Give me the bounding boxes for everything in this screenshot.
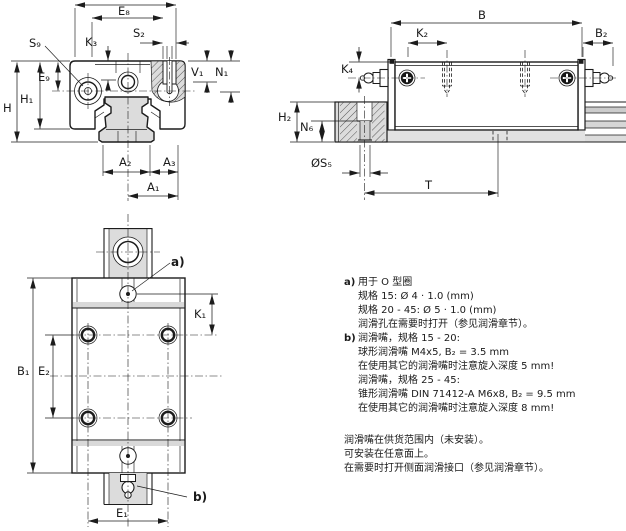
note-item-a: a) 用于 O 型圈 规格 15: Ø 4 · 1.0 (mm) 规格 20 -… (344, 276, 626, 332)
note-line: 规格 20 - 45: Ø 5 · 1.0 (mm) (358, 304, 533, 318)
dim-label-s5: ØS₅ (311, 156, 332, 170)
note-line: 润滑嘴，规格 25 - 45: (358, 374, 576, 388)
lubrication-notes: a) 用于 O 型圈 规格 15: Ø 4 · 1.0 (mm) 规格 20 -… (344, 276, 626, 476)
guide-rail-section (99, 97, 154, 142)
side-view: B K₂ B₂ K₄ H₂ N₆ ØS₅ T (278, 8, 626, 200)
dim-label-s9: S₉ (29, 36, 41, 50)
note-marker-a: a) (344, 276, 358, 332)
dim-label-k4: K₄ (341, 62, 354, 76)
dim-label-h: H (3, 101, 12, 115)
dim-label-b1: B₁ (17, 364, 30, 378)
dim-label-e1: E₁ (116, 506, 128, 520)
note-footer: 润滑嘴在供货范围内（未安装）。 可安装在任意面上。 在需要时打开侧面润滑接口（参… (344, 434, 626, 476)
note-line: 润滑孔在需要时打开（参见润滑章节）。 (358, 318, 533, 332)
dim-label-a2: A₂ (119, 155, 131, 169)
note-line: 润滑嘴，规格 15 - 20: (358, 332, 576, 346)
dim-label-k2: K₂ (416, 26, 428, 40)
dim-label-n6: N₆ (300, 120, 314, 134)
dim-label-h2: H₂ (278, 110, 291, 124)
note-a-lines: 用于 O 型圈 规格 15: Ø 4 · 1.0 (mm) 规格 20 - 45… (358, 276, 533, 332)
dim-label-b2: B₂ (595, 26, 608, 40)
dim-label-a3: A₃ (163, 155, 176, 169)
top-view: a) K₁ B₁ E₂ E₁ b) (17, 214, 222, 529)
dim-label-h1: H₁ (20, 92, 33, 106)
note-line: 在使用其它的润滑嘴时注意旋入深度 8 mm! (358, 402, 576, 416)
dim-label-t: T (424, 178, 433, 192)
dim-label-e2: E₂ (38, 364, 50, 378)
dim-label-v1: V₁ (191, 65, 203, 79)
note-line: 锥形润滑嘴 DIN 71412-A M6x8, B₂ = 9.5 mm (358, 388, 576, 402)
note-line: 规格 15: Ø 4 · 1.0 (mm) (358, 290, 533, 304)
dim-label-s2: S₂ (133, 26, 145, 40)
note-line: 球形润滑嘴 M4x5, B₂ = 3.5 mm (358, 346, 576, 360)
dim-label-k1: K₁ (194, 307, 206, 321)
callout-label-a: a) (171, 255, 185, 269)
dim-label-e8: E₈ (118, 4, 130, 18)
catalog-drawing-page: E₈ S₂ K₃ S₉ V₁ N₁ E₉ H₁ H A₂ A₃ A₁ (0, 0, 626, 531)
front-view: E₈ S₂ K₃ S₉ V₁ N₁ E₉ H₁ H A₂ A₃ A₁ (3, 4, 240, 201)
dim-label-k3: K₃ (85, 35, 98, 49)
note-line: 在使用其它的润滑嘴时注意旋入深度 5 mm! (358, 360, 576, 374)
dim-label-e9: E₉ (38, 70, 50, 84)
note-item-b: b) 润滑嘴，规格 15 - 20: 球形润滑嘴 M4x5, B₂ = 3.5 … (344, 332, 626, 416)
carriage-side-body (388, 60, 585, 131)
rail-mounting-hole-section (335, 102, 387, 142)
dim-label-a1: A₁ (147, 180, 159, 194)
callout-label-b: b) (193, 490, 207, 504)
note-line: 用于 O 型圈 (358, 276, 533, 290)
note-line: 可安装在任意面上。 (344, 448, 626, 462)
note-marker-b: b) (344, 332, 358, 416)
note-line: 在需要时打开侧面润滑接口（参见润滑章节）。 (344, 462, 626, 476)
dim-label-n1: N₁ (215, 65, 228, 79)
dim-label-b: B (478, 8, 486, 22)
note-b-lines: 润滑嘴，规格 15 - 20: 球形润滑嘴 M4x5, B₂ = 3.5 mm … (358, 332, 576, 416)
note-line: 润滑嘴在供货范围内（未安装）。 (344, 434, 626, 448)
